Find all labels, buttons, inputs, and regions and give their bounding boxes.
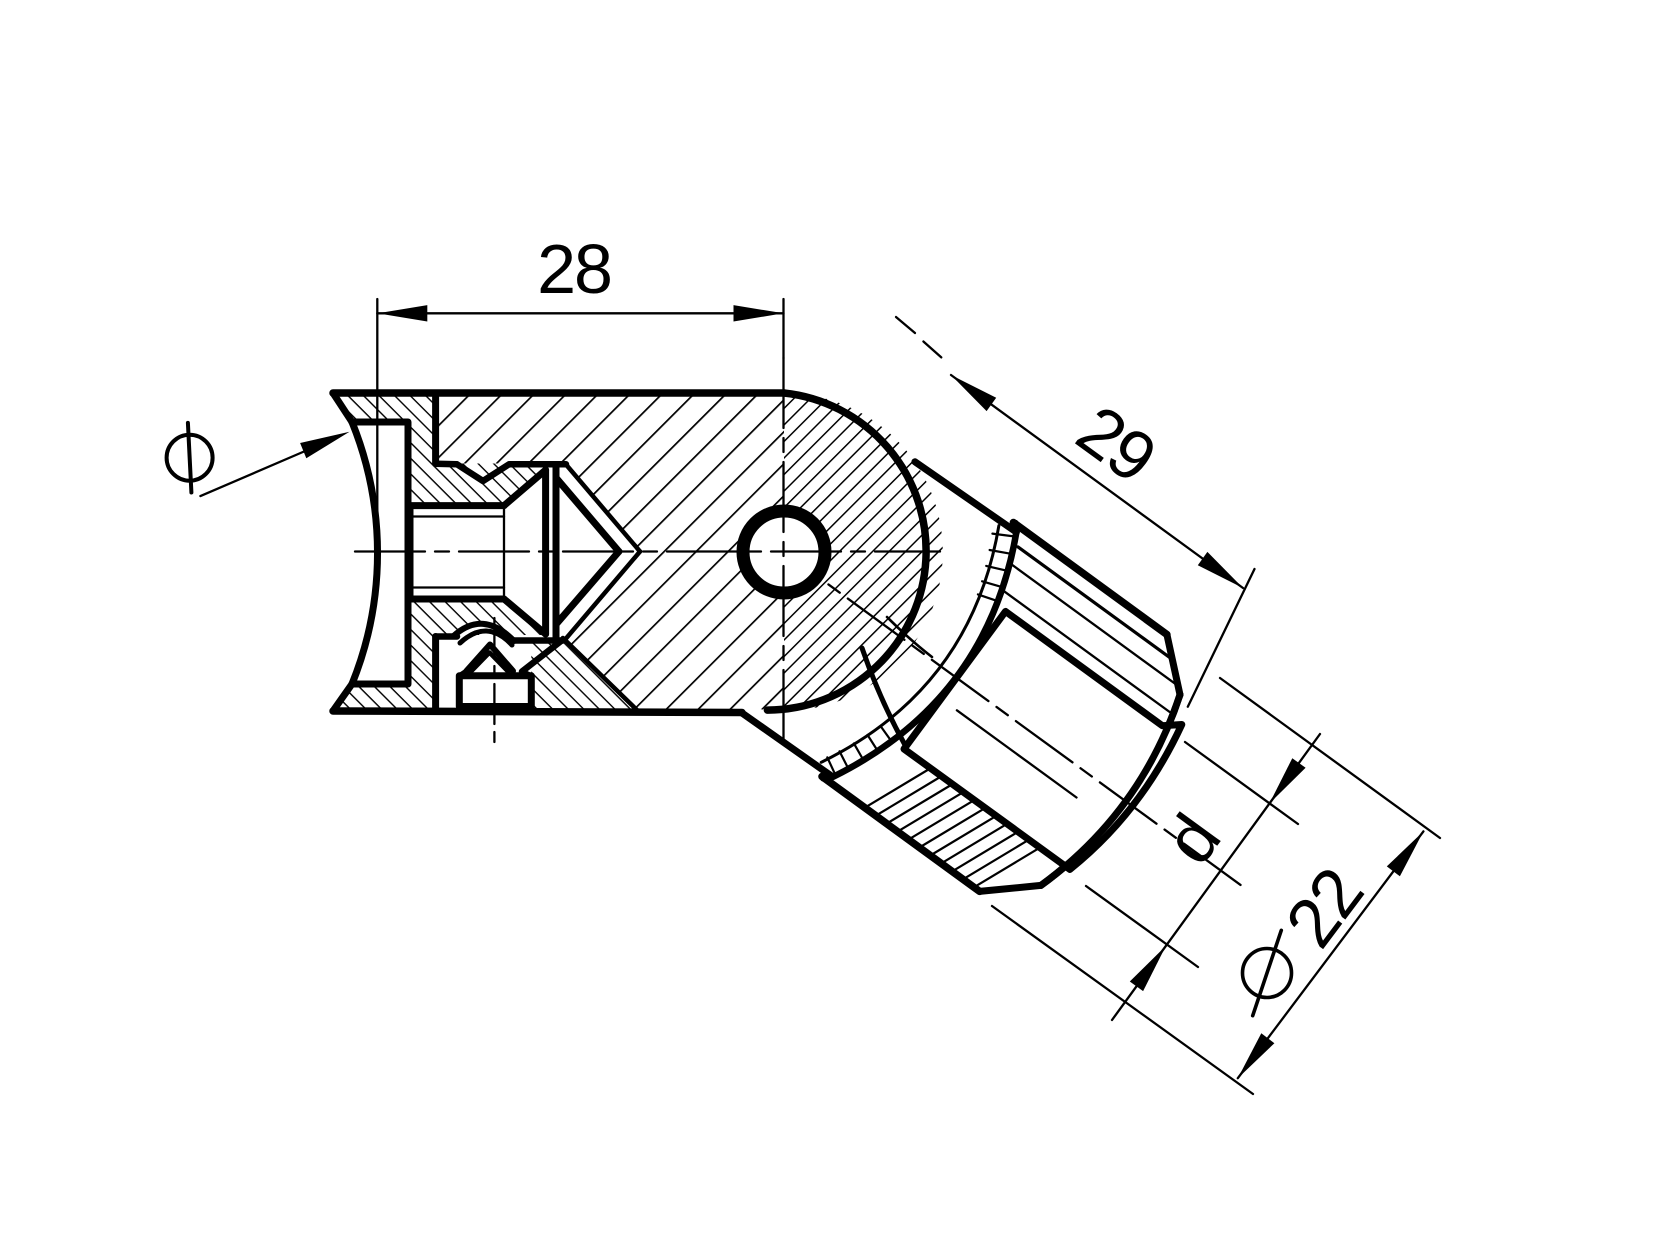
svg-text:28: 28 [537, 230, 611, 308]
